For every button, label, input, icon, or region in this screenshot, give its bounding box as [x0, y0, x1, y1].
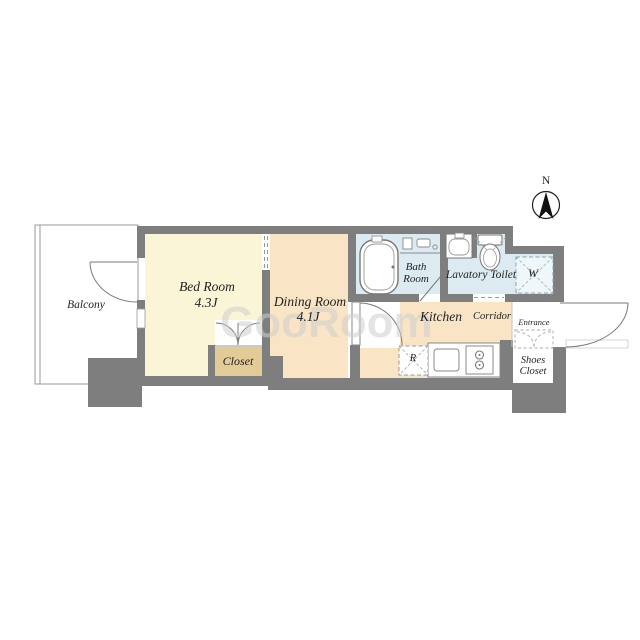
entrance-label: Entrance — [508, 318, 560, 327]
wall-bedroom-south — [137, 376, 215, 386]
balcony-label: Balcony — [51, 299, 121, 311]
shoes-closet-label: Shoes Closet — [509, 355, 557, 378]
bath-shower-unit — [403, 238, 412, 249]
compass-north-label: N — [536, 175, 556, 187]
stove-unit — [466, 346, 493, 374]
wall-right-upper — [553, 246, 564, 302]
stove-burner-2-dot — [479, 364, 481, 366]
wall-step-toilet — [505, 234, 513, 248]
wall-bottom-main — [268, 378, 512, 390]
closet-label: Closet — [208, 355, 268, 368]
bedroom-size: 4.3J — [176, 296, 236, 311]
lavatory-toilet-label: Lavatory Toilet — [445, 269, 517, 281]
toilet-bowl — [480, 244, 500, 270]
wall-kitchen-west — [350, 345, 360, 390]
bathtub-faucet — [372, 236, 382, 242]
wall-pillar-southwest — [88, 358, 142, 407]
bath-faucet-unit — [417, 239, 430, 247]
vanity-tap — [455, 233, 464, 238]
kitchen-sink — [434, 349, 459, 371]
balcony-door-arc — [90, 262, 137, 302]
shoes-door-arc-left — [517, 332, 534, 347]
stove-burner-1-dot — [479, 354, 481, 356]
floor-plan: GooRoom Balcony Bed Room 4.3J Dining Roo… — [0, 0, 640, 640]
wall-west-b — [137, 300, 145, 309]
refrigerator-label: R — [403, 353, 423, 364]
dining-room-size: 4.1J — [278, 310, 338, 325]
bedroom-label: Bed Room — [162, 280, 252, 295]
shoes-door-arc-right — [534, 332, 551, 347]
dining-room-label: Dining Room — [255, 295, 365, 310]
wall-dining-bath — [348, 234, 356, 302]
bedroom-window — [137, 309, 145, 328]
wall-lavatory-south-a — [440, 294, 473, 302]
wall-bottom-right-block — [512, 383, 566, 413]
shoes-closet-doors — [515, 330, 553, 348]
sliding-door-pocket — [262, 234, 270, 270]
bathroom-label: Bath Room — [393, 262, 439, 286]
compass — [533, 192, 560, 220]
wall-lavatory-south-b — [505, 294, 564, 302]
wall-west-a — [137, 226, 145, 258]
washer-label: W — [523, 267, 543, 280]
